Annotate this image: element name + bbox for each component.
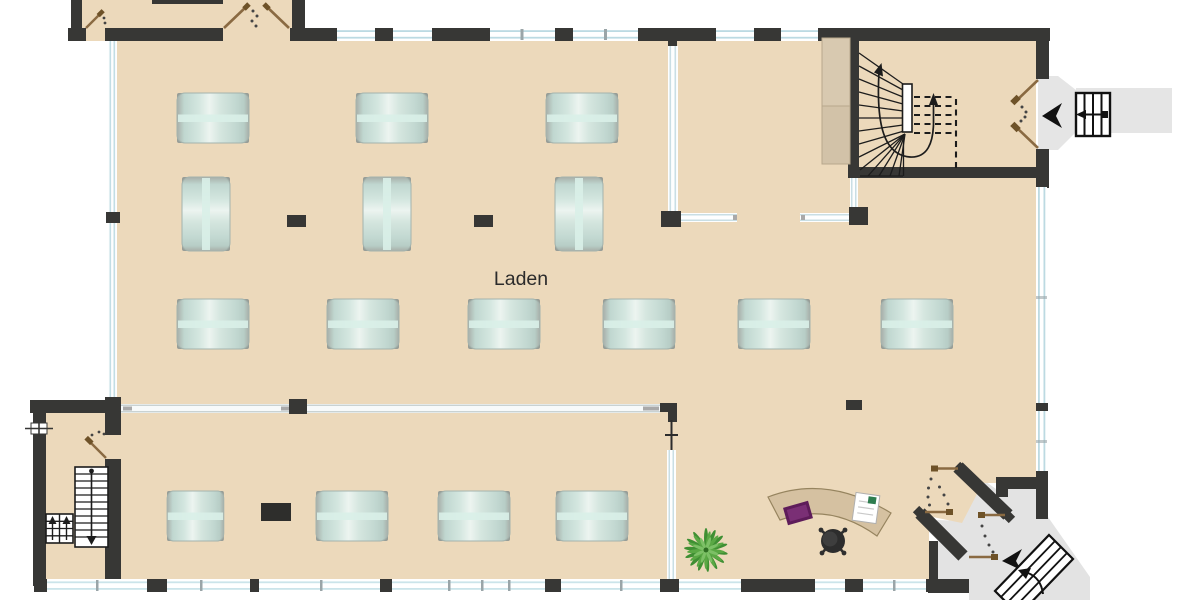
svg-text:Laden: Laden: [494, 268, 548, 290]
